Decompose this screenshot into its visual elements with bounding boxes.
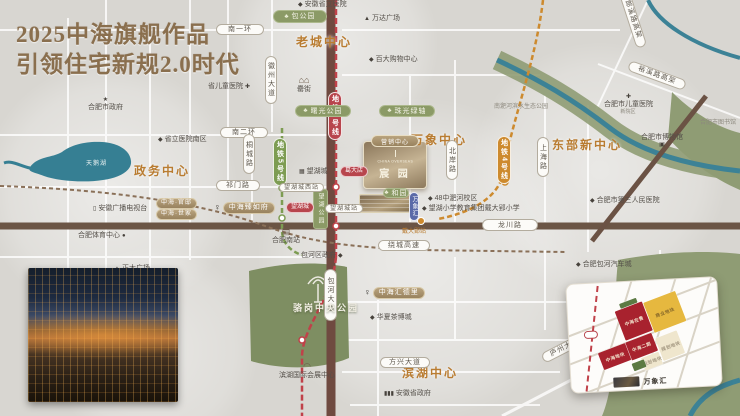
central-park-label: 骆岗中央公园	[293, 301, 359, 314]
tree-icon: ♣	[304, 108, 309, 114]
project-pin: ♀中海臻如府	[214, 202, 275, 214]
metro-station-label: 葛大店	[340, 166, 368, 177]
landmark-label: 安徽广播电视台	[98, 205, 147, 212]
landmark: ◆省立医院南区	[158, 136, 207, 143]
project-pin: ♀中海汇德里	[364, 287, 425, 299]
project-sales-pill: 营销中心	[371, 135, 419, 147]
project-pin-label: 中海汇德里	[373, 287, 425, 299]
park-name: 包公园	[291, 13, 315, 20]
landmark-label: 省立医院南区	[165, 136, 207, 143]
tree-icon: ♣	[388, 108, 393, 114]
landmark-icon: ◆	[590, 198, 595, 204]
landmark: 包河区政府◆	[301, 252, 343, 259]
inset-metro-station	[584, 330, 598, 339]
inset-parcel-label: 中海在售	[623, 314, 644, 327]
landmark-icon: ◆	[576, 262, 581, 268]
metro-station-label: 望湖城西站	[279, 183, 324, 192]
inset-parcel-label: 商业地块	[654, 305, 675, 318]
landmark-label: 华夏茶博城	[377, 314, 412, 321]
landmark: ▲万达广场	[364, 15, 400, 22]
landmark: 合肥市图书馆	[700, 120, 736, 126]
landmark-label: 合肥市第三人民医院	[597, 197, 660, 204]
landmark-icon: ◆	[422, 206, 427, 212]
park-name: 曙光公园	[310, 108, 342, 115]
landmark-label: 安徽省立医院	[305, 1, 347, 8]
landmark: ▤合肥南站	[272, 227, 300, 244]
landmark-icon: ✚	[245, 84, 250, 90]
metro-station-label: 望湖城站	[325, 204, 363, 213]
landmark: 省儿童医院✚	[208, 83, 250, 90]
landmark-label: 万达广场	[372, 15, 400, 22]
landmark-label: 滨湖国际会展中心	[279, 372, 335, 379]
park-name: 和园	[391, 190, 407, 197]
district-label: 政务中心	[134, 162, 190, 179]
metro-station-label: 戴大郢站	[402, 226, 426, 235]
landmark-label: 望湖城	[307, 168, 328, 175]
landmark-label: 合肥体育中心	[78, 232, 120, 239]
road-capsule: 方兴大道	[380, 357, 430, 368]
landmark-icon: ◠	[303, 362, 311, 371]
road-capsule: 桐城路	[243, 134, 255, 174]
district-label: 东部新中心	[552, 136, 622, 153]
landmark-icon: ◆	[158, 137, 163, 143]
location-pin-icon: ♀	[214, 203, 221, 212]
landmark: ◆华夏茶博城	[370, 314, 412, 321]
project-mini-tag: 中海·官邸	[156, 198, 197, 209]
inset-parcel-label: 规划地块	[660, 339, 681, 352]
inset-legend-label: 万象汇	[643, 376, 667, 387]
landmark-label: 罍街	[297, 86, 311, 93]
landmark: ◆48中淝河校区	[428, 195, 477, 202]
landmark-icon: ◆	[298, 2, 303, 8]
title-line1: 2025中海旗舰作品	[16, 20, 240, 50]
map-poster: 2025中海旗舰作品 引领住宅新规2.0时代 天鹅湖 CHINA OVERSEA…	[0, 0, 740, 416]
landmark: ▯安徽广播电视台	[93, 205, 147, 212]
mall-tag: 万象汇	[409, 192, 419, 221]
landmark-label: 省儿童医院	[208, 83, 243, 90]
landmark-label: 48中淝河校区	[435, 195, 478, 202]
landmark-label: 合肥南站	[272, 237, 300, 244]
project-logo-en: CHINA OVERSEAS	[377, 160, 413, 164]
title-line2: 引领住宅新规2.0时代	[16, 50, 240, 80]
landmark: ✚合肥市儿童医院新院区	[604, 94, 653, 115]
inset-parcel: 中海地块	[598, 343, 632, 370]
park-label: ♣包公园	[273, 10, 327, 23]
landmark-icon: ◆	[428, 196, 433, 202]
road-capsule: 祁门路	[216, 180, 260, 191]
district-label: 老城中心	[296, 33, 352, 50]
landmark: ◆百大购物中心	[369, 56, 418, 63]
project-mini-tag: 中海·世家	[156, 209, 197, 220]
landmark: ▮▮▮安徽省政府	[384, 390, 431, 397]
landmark-icon: ★	[103, 97, 108, 103]
metro-station-label: 望湖城	[286, 202, 314, 213]
road-capsule: 绕城高速	[378, 240, 430, 251]
inset-legend-chip	[613, 376, 639, 387]
landmark: ▦望湖城	[299, 168, 328, 175]
park-label: ♣和园	[383, 188, 409, 198]
landmark: ◠滨湖国际会展中心	[279, 362, 335, 379]
landmark: 合肥市博物馆▣	[641, 134, 683, 148]
landmark: ◆安徽省立医院	[298, 1, 347, 8]
landmark-label: 包河区政府	[301, 252, 336, 259]
swan-lake-label: 天鹅湖	[86, 158, 107, 167]
road-capsule: 上海路	[537, 137, 549, 177]
location-pin-icon: ♀	[364, 288, 371, 297]
project-pin-label: 中海臻如府	[223, 202, 275, 214]
landmark-icon: ◆	[338, 253, 343, 259]
aerial-city-photo	[28, 268, 178, 402]
landmark-icon: ⌂⌂	[299, 76, 310, 85]
landmark-label: 合肥市政府	[88, 104, 123, 111]
landmark-icon: ▣	[659, 142, 665, 148]
landmark-label: 南淝河滨水生态公园	[494, 104, 548, 110]
landmark-icon: ▦	[299, 169, 305, 175]
metro-line-capsule: 地铁4号线	[497, 136, 511, 184]
landmark: ⌂⌂罍街	[297, 76, 311, 93]
landmark-label: 安徽省政府	[396, 390, 431, 397]
tree-icon: ♣	[385, 190, 390, 196]
landmark-icon: ◆	[369, 57, 374, 63]
landmark: ◆合肥市第三人民医院	[590, 197, 660, 204]
landmark-sublabel: 新院区	[621, 109, 636, 114]
road-capsule: 龙川路	[482, 219, 538, 231]
road-capsule: 北岸路	[446, 140, 458, 180]
landmark: ◆合肥包河汽车城	[576, 261, 632, 268]
park-name: 珠光绿轴	[394, 108, 426, 115]
landmark-icon: ✚	[626, 94, 631, 100]
park-label: ♣曙光公园	[295, 105, 351, 117]
landmark-label: 合肥市图书馆	[700, 120, 736, 126]
road-capsule: 徽州大道	[265, 56, 277, 104]
landmark-label: 望湖小学教育集团戴大郢小学	[429, 205, 520, 212]
landmark-label: 合肥市博物馆	[641, 134, 683, 141]
landmark: ◆望湖小学教育集团戴大郢小学	[422, 205, 520, 212]
landmark-label: 合肥市儿童医院	[604, 101, 653, 108]
landmark: 合肥体育中心●	[78, 232, 126, 239]
poster-title: 2025中海旗舰作品 引领住宅新规2.0时代	[16, 20, 240, 80]
landmark-icon: ▤	[282, 227, 291, 236]
parcel-inset-map: 商业地块中海在售中海二期中海地块规划地块规划地块 万象汇	[565, 276, 723, 394]
project-logo-cn: 宸 园	[379, 165, 411, 180]
metro-line-capsule: 地铁5号线	[273, 138, 287, 186]
landmark-label: 百大购物中心	[376, 56, 418, 63]
landmark-icon: ◆	[370, 315, 375, 321]
landmark-icon: ▮▮▮	[384, 391, 394, 397]
park-label: ♣珠光绿轴	[379, 105, 435, 117]
landmark: 南淝河滨水生态公园	[494, 104, 548, 110]
landmark: ★合肥市政府	[88, 97, 123, 111]
inset-parcel-label: 中海二期	[631, 340, 652, 353]
landmark-icon: ▲	[364, 16, 370, 22]
project-logo-line	[395, 150, 396, 157]
district-label: 万象中心	[411, 131, 467, 148]
landmark-label: 合肥包河汽车城	[583, 261, 632, 268]
landmark-icon: ▯	[93, 206, 96, 212]
project-main-block: CHINA OVERSEAS 宸 园	[363, 141, 427, 189]
inset-parcel-label: 中海地块	[604, 350, 625, 363]
tree-icon: ♣	[285, 14, 290, 20]
landmark-icon: ●	[122, 233, 126, 239]
